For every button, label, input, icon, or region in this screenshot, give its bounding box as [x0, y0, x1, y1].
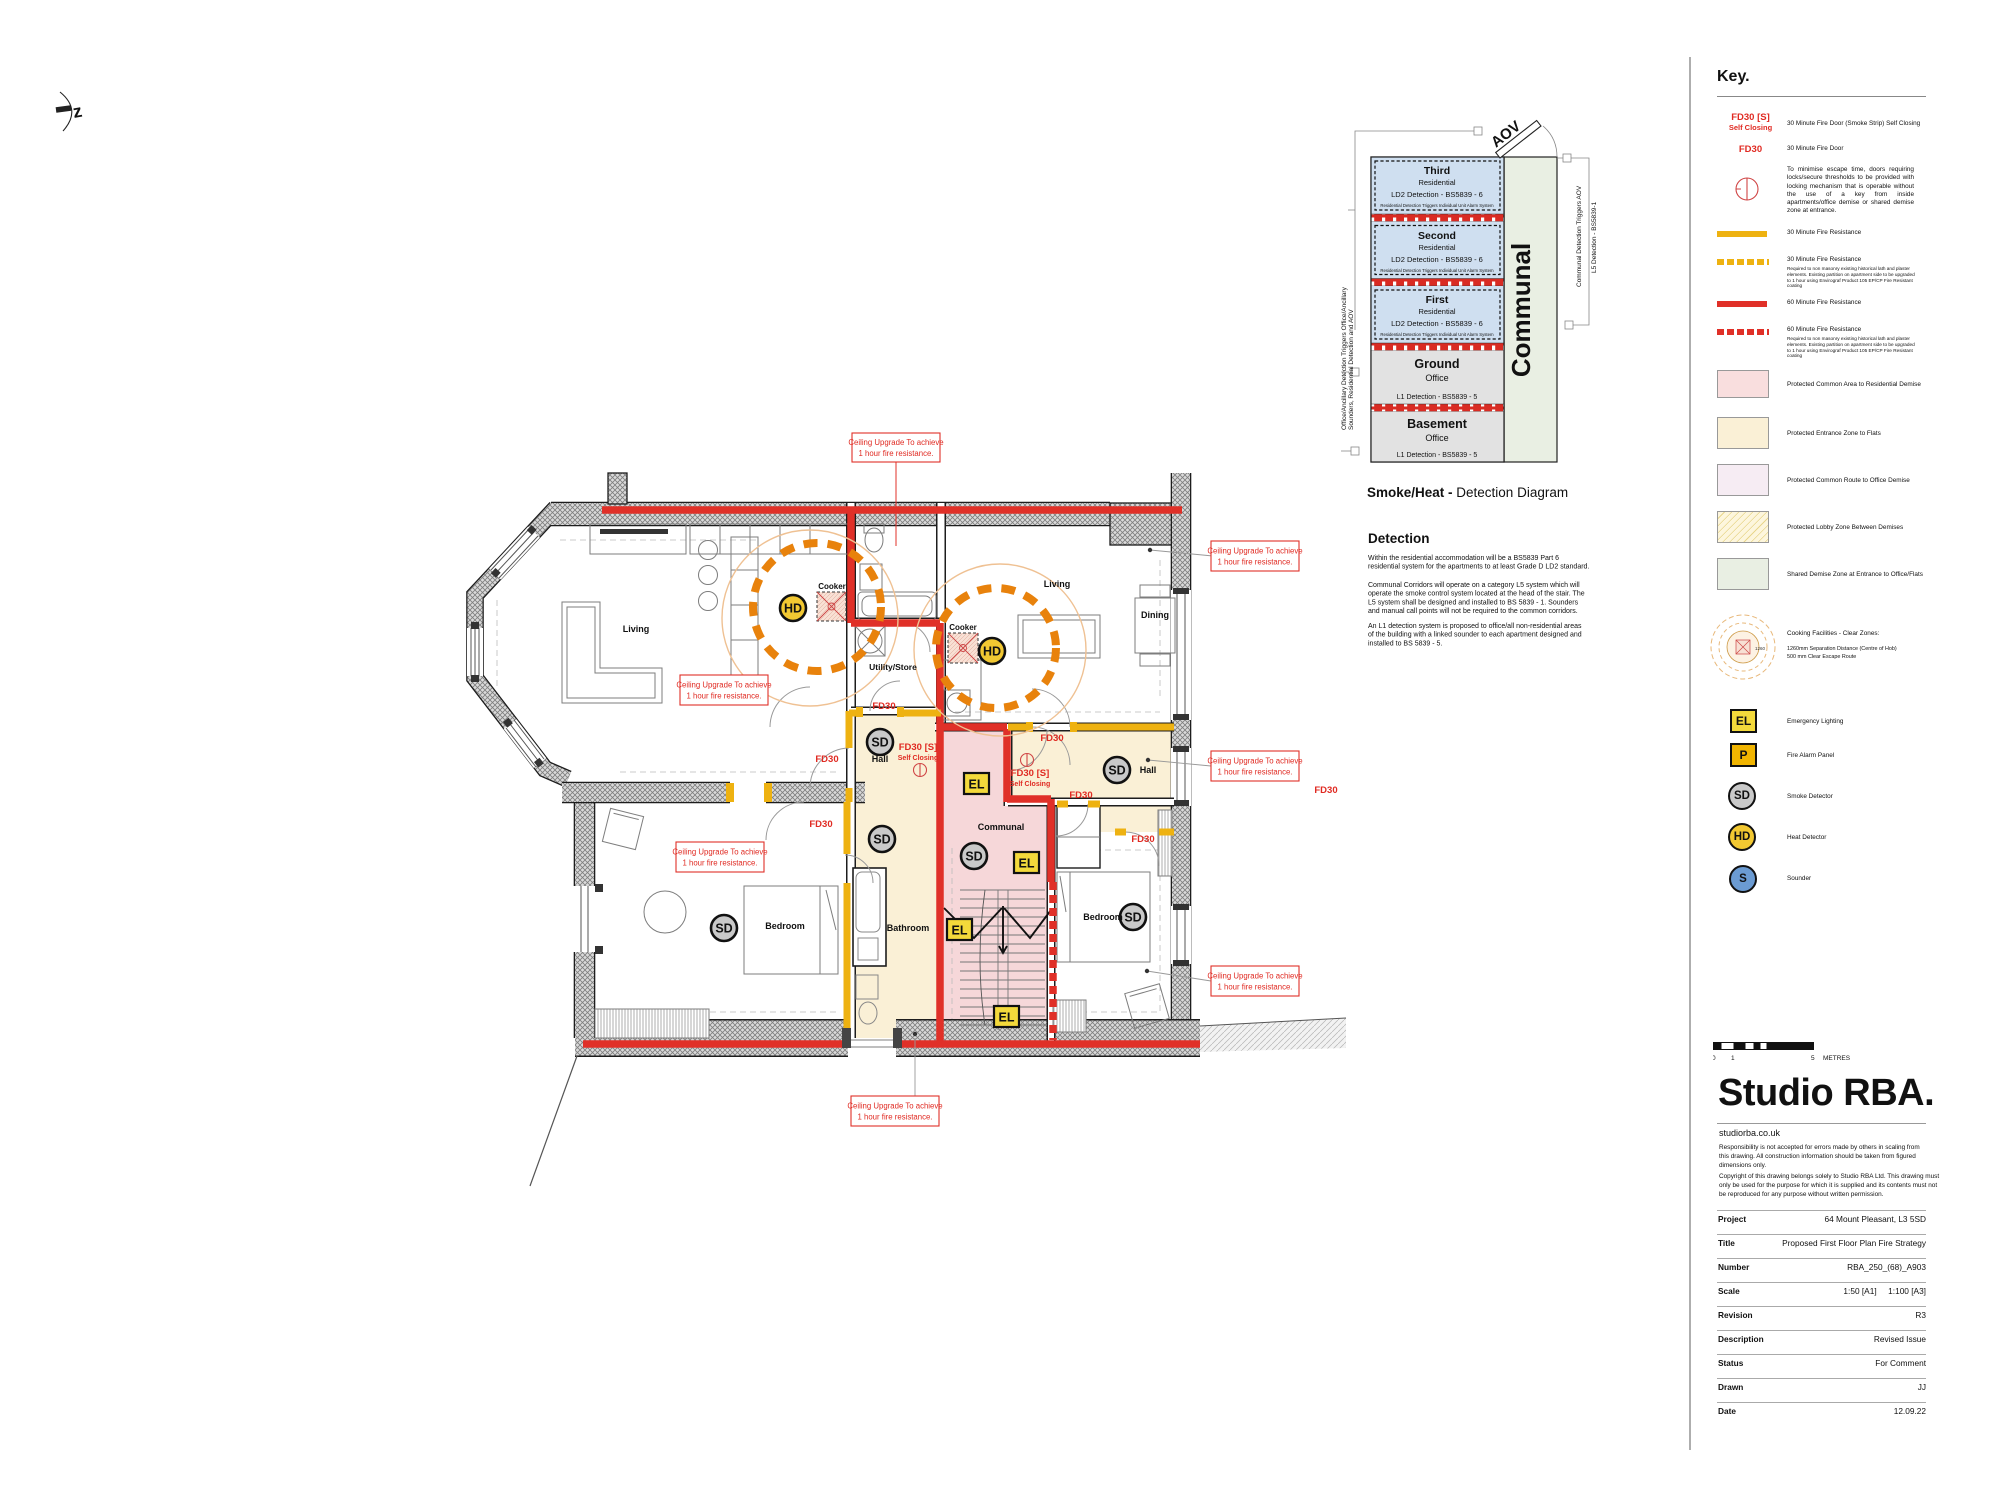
- svg-text:EL: EL: [952, 924, 968, 938]
- svg-text:1 hour fire resistance.: 1 hour fire resistance.: [687, 692, 762, 701]
- svg-text:Cooker: Cooker: [949, 623, 977, 632]
- svg-text:Sounders, Residential Detectio: Sounders, Residential Detection and AOV: [1348, 309, 1355, 430]
- svg-text:installed to BS 5839 - 5.: installed to BS 5839 - 5.: [1368, 640, 1442, 647]
- svg-text:Living: Living: [1044, 579, 1071, 589]
- svg-text:Office: Office: [1425, 433, 1448, 443]
- svg-text:FD30: FD30: [815, 754, 838, 765]
- svg-text:FD30 [S]: FD30 [S]: [1011, 768, 1050, 779]
- svg-text:LD2 Detection - BS5839 - 6: LD2 Detection - BS5839 - 6: [1391, 255, 1483, 264]
- svg-text:1: 1: [1731, 1055, 1735, 1062]
- svg-text:1 hour fire resistance.: 1 hour fire resistance.: [859, 449, 934, 458]
- svg-text:FD30: FD30: [1069, 790, 1092, 801]
- svg-text:Third: Third: [1424, 165, 1450, 177]
- svg-text:Hall: Hall: [1140, 765, 1157, 775]
- svg-text:Detection: Detection: [1368, 531, 1430, 546]
- svg-text:Communal: Communal: [978, 822, 1025, 832]
- svg-text:LD2 Detection - BS5839 - 6: LD2 Detection - BS5839 - 6: [1391, 190, 1483, 199]
- svg-text:Residential Detection Triggers: Residential Detection Triggers Individua…: [1380, 332, 1494, 337]
- svg-text:Hall: Hall: [872, 754, 889, 764]
- svg-text:FD30: FD30: [809, 819, 832, 830]
- svg-text:SD: SD: [965, 850, 982, 864]
- svg-text:Basement: Basement: [1407, 417, 1468, 431]
- svg-text:of the building with a linked: of the building with a linked sounder to…: [1368, 632, 1582, 639]
- svg-text:and manual call points will no: and manual call points will not be requi…: [1368, 608, 1578, 615]
- svg-text:5: 5: [1811, 1055, 1815, 1062]
- svg-text:Residential: Residential: [1418, 178, 1455, 187]
- svg-text:FD30 [S]: FD30 [S]: [899, 742, 938, 753]
- svg-text:Residential Detection Triggers: Residential Detection Triggers Individua…: [1380, 203, 1494, 208]
- svg-text:FD30: FD30: [1040, 733, 1063, 744]
- svg-text:0: 0: [1713, 1055, 1716, 1062]
- svg-text:SD: SD: [1108, 764, 1125, 778]
- svg-text:Second: Second: [1418, 230, 1456, 242]
- svg-text:Office: Office: [1425, 373, 1448, 383]
- svg-text:Dining: Dining: [1141, 610, 1169, 620]
- svg-text:1 hour fire resistance.: 1 hour fire resistance.: [1218, 558, 1293, 567]
- svg-text:Ceiling Upgrade To achieve: Ceiling Upgrade To achieve: [1207, 757, 1302, 766]
- svg-text:1 hour fire resistance.: 1 hour fire resistance.: [858, 1113, 933, 1122]
- svg-text:Residential: Residential: [1418, 307, 1455, 316]
- svg-text:Ceiling Upgrade To achieve: Ceiling Upgrade To achieve: [1207, 547, 1302, 556]
- svg-text:1260: 1260: [1755, 646, 1766, 651]
- svg-text:Communal Detection Triggers AO: Communal Detection Triggers AOV: [1576, 185, 1583, 287]
- svg-text:Residential Detection Triggers: Residential Detection Triggers Individua…: [1380, 268, 1494, 273]
- svg-text:Bedroom: Bedroom: [765, 921, 805, 931]
- svg-text:METRES: METRES: [1823, 1055, 1851, 1062]
- svg-text:1 hour fire resistance.: 1 hour fire resistance.: [1218, 768, 1293, 777]
- svg-text:Ceiling Upgrade To achieve: Ceiling Upgrade To achieve: [848, 438, 943, 447]
- svg-text:Residential: Residential: [1418, 243, 1455, 252]
- svg-text:EL: EL: [969, 778, 985, 792]
- svg-text:Ceiling Upgrade To achieve: Ceiling Upgrade To achieve: [676, 681, 771, 690]
- svg-text:SD: SD: [1124, 911, 1141, 925]
- svg-text:Communal Corridors will operat: Communal Corridors will operate on a cat…: [1368, 582, 1580, 589]
- svg-text:An L1 detection system is prop: An L1 detection system is proposed to of…: [1368, 623, 1582, 630]
- svg-text:Bathroom: Bathroom: [887, 923, 930, 933]
- svg-text:residential system for the apa: residential system for the apartments to…: [1368, 564, 1589, 571]
- svg-text:FD30: FD30: [1314, 785, 1337, 796]
- svg-text:EL: EL: [1019, 857, 1035, 871]
- svg-text:Ground: Ground: [1414, 357, 1459, 371]
- svg-text:L5 system shall be designed an: L5 system shall be designed and installe…: [1368, 599, 1579, 606]
- svg-text:L1 Detection - BS5839 - 5: L1 Detection - BS5839 - 5: [1397, 452, 1478, 459]
- svg-text:Within the residential accomm: Within the residential accommodation wil…: [1368, 555, 1559, 562]
- svg-text:Ceiling Upgrade To achieve: Ceiling Upgrade To achieve: [847, 1102, 942, 1111]
- svg-text:Communal: Communal: [1506, 243, 1536, 377]
- svg-text:Self Closing: Self Closing: [1010, 781, 1050, 788]
- svg-text:Ceiling Upgrade To achieve: Ceiling Upgrade To achieve: [672, 848, 767, 857]
- svg-text:LD2 Detection - BS5839 - 6: LD2 Detection - BS5839 - 6: [1391, 319, 1483, 328]
- svg-text:Living: Living: [623, 624, 650, 634]
- svg-text:FD30: FD30: [1131, 834, 1154, 845]
- svg-text:z: z: [71, 101, 83, 122]
- svg-text:FD30: FD30: [872, 701, 895, 712]
- svg-text:EL: EL: [999, 1011, 1015, 1025]
- svg-text:Bedroom: Bedroom: [1083, 912, 1123, 922]
- svg-text:Cooker: Cooker: [818, 582, 846, 591]
- svg-text:operate the smoke control syst: operate the smoke control system located…: [1368, 591, 1585, 598]
- svg-text:SD: SD: [873, 833, 890, 847]
- svg-text:SD: SD: [715, 922, 732, 936]
- svg-text:L1 Detection - BS5839 - 5: L1 Detection - BS5839 - 5: [1397, 394, 1478, 401]
- svg-text:Utility/Store: Utility/Store: [869, 662, 917, 672]
- svg-text:1 hour fire resistance.: 1 hour fire resistance.: [683, 859, 758, 868]
- svg-text:SD: SD: [871, 736, 888, 750]
- svg-text:L5 Detection - BS5839-1: L5 Detection - BS5839-1: [1591, 201, 1598, 273]
- svg-text:Ceiling Upgrade To achieve: Ceiling Upgrade To achieve: [1207, 972, 1302, 981]
- svg-text:HD: HD: [983, 645, 1001, 659]
- svg-text:First: First: [1426, 294, 1449, 306]
- svg-text:Smoke/Heat - Detection Diagram: Smoke/Heat - Detection Diagram: [1367, 485, 1568, 500]
- svg-text:HD: HD: [784, 602, 802, 616]
- svg-text:1 hour fire resistance.: 1 hour fire resistance.: [1218, 983, 1293, 992]
- svg-text:Office/Ancillary Detection Tri: Office/Ancillary Detection Triggers Offi…: [1341, 286, 1348, 430]
- svg-text:Self Closing: Self Closing: [898, 755, 938, 762]
